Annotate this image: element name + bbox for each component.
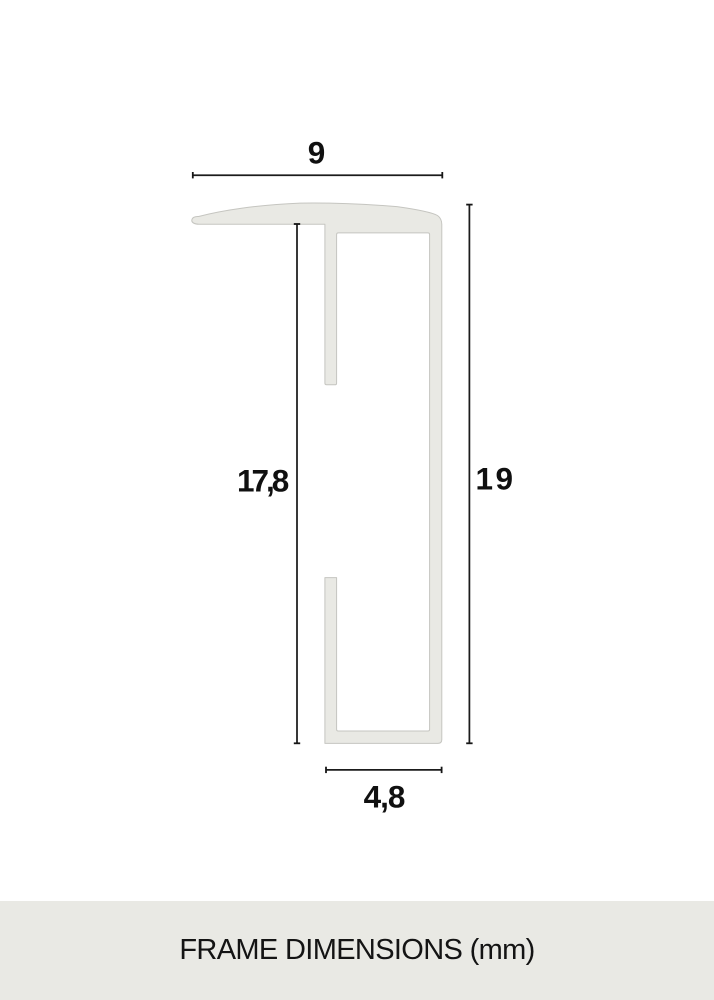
svg-text:17,8: 17,8 [237, 463, 289, 499]
svg-text:19: 19 [476, 461, 516, 497]
svg-text:4,8: 4,8 [364, 778, 405, 814]
svg-text:FRAME DIMENSIONS (mm): FRAME DIMENSIONS (mm) [179, 934, 534, 966]
svg-text:9: 9 [308, 135, 326, 171]
